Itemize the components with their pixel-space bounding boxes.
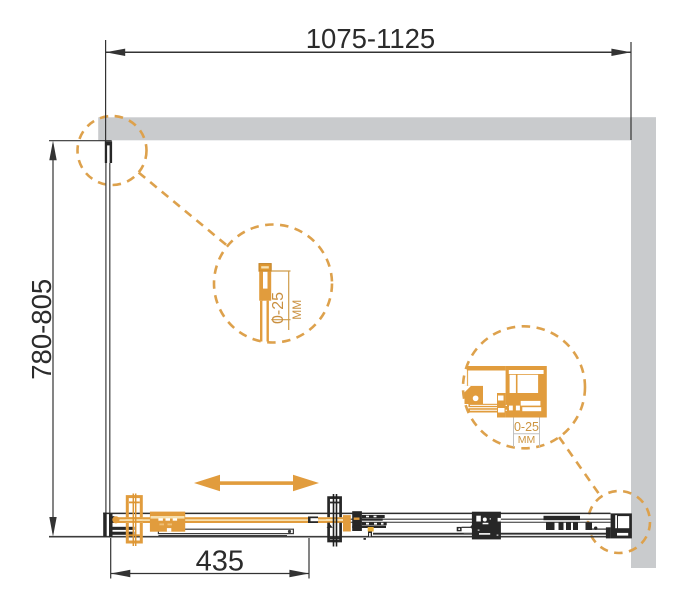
svg-text:780-805: 780-805: [26, 279, 57, 380]
svg-text:ММ: ММ: [518, 434, 536, 446]
svg-text:435: 435: [196, 546, 244, 578]
svg-text:0-25: 0-25: [270, 292, 287, 324]
svg-text:ММ: ММ: [290, 300, 304, 320]
svg-text:1075-1125: 1075-1125: [306, 23, 435, 54]
svg-text:0-25: 0-25: [514, 420, 539, 434]
